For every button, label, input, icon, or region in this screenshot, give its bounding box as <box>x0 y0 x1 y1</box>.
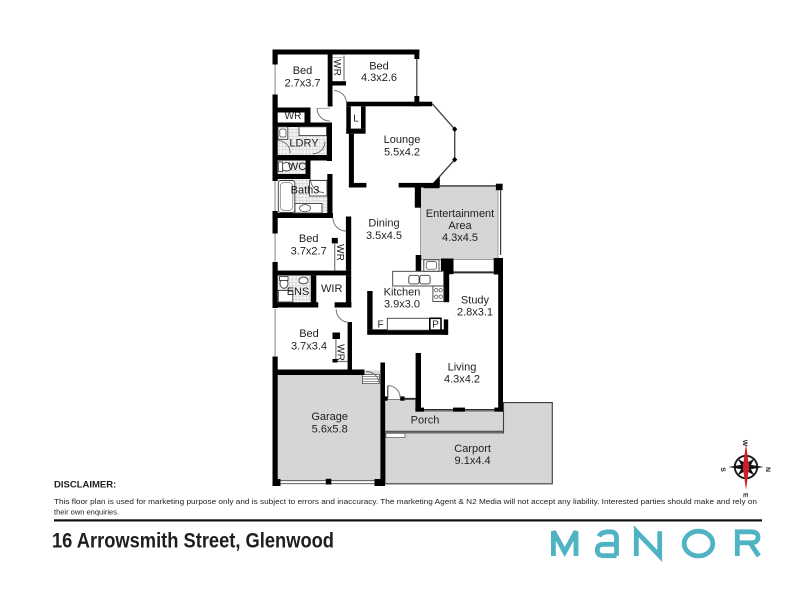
svg-text:N: N <box>764 467 771 472</box>
svg-text:Entertainment: Entertainment <box>426 208 494 220</box>
svg-text:3.9x3.0: 3.9x3.0 <box>384 299 420 311</box>
svg-text:Study: Study <box>461 295 490 307</box>
svg-text:Carport: Carport <box>454 443 491 455</box>
svg-text:Kitchen: Kitchen <box>384 287 421 299</box>
svg-text:5.6x5.8: 5.6x5.8 <box>312 424 348 436</box>
svg-text:E: E <box>742 493 749 498</box>
svg-text:Garage: Garage <box>311 411 348 423</box>
svg-text:Porch: Porch <box>411 415 440 427</box>
svg-text:ENS: ENS <box>287 286 310 298</box>
svg-text:16 Arrowsmith Street, Glenwood: 16 Arrowsmith Street, Glenwood <box>52 530 334 553</box>
svg-text:WIR: WIR <box>321 283 342 295</box>
svg-text:Bed: Bed <box>299 328 319 340</box>
svg-text:4.3x2.6: 4.3x2.6 <box>361 72 397 84</box>
svg-text:3.7x3.4: 3.7x3.4 <box>291 341 327 353</box>
svg-text:DISCLAIMER:: DISCLAIMER: <box>54 480 116 491</box>
svg-text:WR: WR <box>285 111 302 122</box>
svg-text:Living: Living <box>448 362 477 374</box>
svg-text:4.3x4.5: 4.3x4.5 <box>442 232 478 244</box>
svg-text:WR: WR <box>331 59 342 76</box>
svg-text:5.5x4.2: 5.5x4.2 <box>384 147 420 159</box>
svg-text:Lounge: Lounge <box>384 134 421 146</box>
svg-text:3.7x2.7: 3.7x2.7 <box>291 246 327 258</box>
svg-text:L: L <box>353 114 359 125</box>
svg-text:WR: WR <box>334 244 345 261</box>
svg-text:2.8x3.1: 2.8x3.1 <box>457 307 493 319</box>
svg-text:WR: WR <box>335 344 346 361</box>
svg-text:9.1x4.4: 9.1x4.4 <box>455 455 491 467</box>
svg-text:Bed: Bed <box>369 61 389 73</box>
svg-text:S: S <box>719 467 726 472</box>
svg-text:3.5x4.5: 3.5x4.5 <box>366 230 402 242</box>
svg-text:Bed: Bed <box>293 65 313 77</box>
svg-text:W: W <box>741 440 748 447</box>
svg-text:WC: WC <box>288 161 306 173</box>
svg-text:Area: Area <box>448 220 472 232</box>
svg-text:This floor plan is used for ma: This floor plan is used for marketing pu… <box>54 497 757 506</box>
svg-text:P: P <box>432 320 439 331</box>
svg-text:Bath3: Bath3 <box>291 185 320 197</box>
svg-text:4.3x4.2: 4.3x4.2 <box>444 374 480 386</box>
svg-text:F: F <box>377 320 383 331</box>
svg-text:2.7x3.7: 2.7x3.7 <box>284 78 320 90</box>
svg-text:their own enquiries.: their own enquiries. <box>54 508 119 517</box>
svg-text:Bed: Bed <box>299 233 319 245</box>
svg-text:LDRY: LDRY <box>289 138 319 150</box>
svg-text:Dining: Dining <box>368 218 399 230</box>
